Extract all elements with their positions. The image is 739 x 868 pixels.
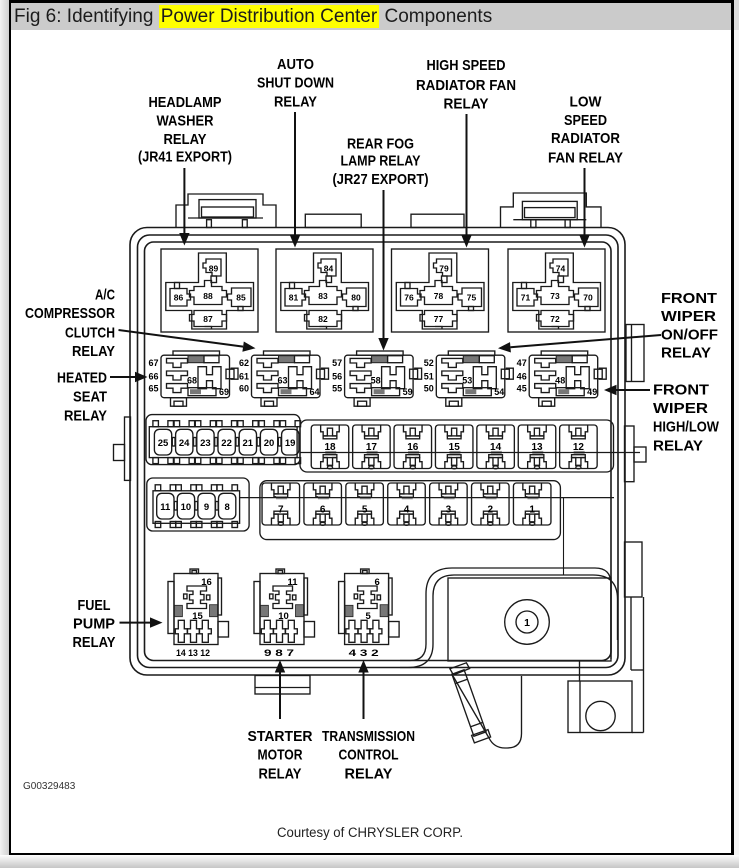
- svg-text:14: 14: [490, 442, 502, 453]
- svg-text:11: 11: [287, 577, 298, 588]
- svg-text:21: 21: [243, 438, 254, 449]
- svg-text:RELAY: RELAY: [164, 131, 207, 148]
- svg-text:FAN RELAY: FAN RELAY: [548, 150, 623, 167]
- svg-text:13: 13: [531, 442, 543, 453]
- svg-text:71: 71: [521, 293, 531, 303]
- svg-text:81: 81: [289, 293, 299, 303]
- svg-text:WIPER: WIPER: [653, 400, 708, 417]
- svg-text:HIGH/LOW: HIGH/LOW: [653, 419, 720, 436]
- svg-text:10: 10: [278, 611, 289, 622]
- svg-text:86: 86: [174, 293, 184, 303]
- svg-text:8: 8: [224, 502, 229, 513]
- svg-text:50: 50: [424, 384, 434, 394]
- svg-text:FRONT: FRONT: [661, 290, 717, 307]
- svg-text:87: 87: [203, 314, 213, 324]
- svg-text:62: 62: [239, 358, 249, 368]
- svg-text:RELAY: RELAY: [259, 766, 302, 783]
- svg-text:ON/OFF: ON/OFF: [661, 327, 718, 344]
- svg-text:RADIATOR: RADIATOR: [551, 130, 620, 147]
- svg-text:SPEED: SPEED: [564, 112, 607, 129]
- svg-text:5: 5: [362, 505, 368, 516]
- svg-text:5: 5: [365, 611, 371, 622]
- svg-text:70: 70: [583, 293, 593, 303]
- svg-text:79: 79: [439, 264, 449, 274]
- svg-text:53: 53: [462, 376, 472, 386]
- svg-text:59: 59: [403, 387, 413, 397]
- svg-text:57: 57: [332, 358, 342, 368]
- svg-text:2: 2: [488, 505, 494, 516]
- svg-text:SHUT DOWN: SHUT DOWN: [257, 75, 334, 92]
- svg-text:85: 85: [236, 293, 246, 303]
- svg-text:COMPRESSOR: COMPRESSOR: [25, 305, 115, 322]
- svg-text:(JR41 EXPORT): (JR41 EXPORT): [138, 149, 232, 166]
- svg-text:69: 69: [219, 387, 229, 397]
- svg-text:A/C: A/C: [95, 287, 115, 304]
- svg-text:61: 61: [239, 372, 249, 382]
- svg-text:RELAY: RELAY: [72, 343, 115, 360]
- svg-text:6: 6: [374, 577, 379, 588]
- svg-text:89: 89: [209, 264, 219, 274]
- svg-text:12: 12: [573, 442, 585, 453]
- svg-text:(JR27 EXPORT): (JR27 EXPORT): [333, 171, 429, 188]
- svg-text:4: 4: [404, 505, 410, 516]
- svg-text:HIGH SPEED: HIGH SPEED: [427, 57, 506, 74]
- svg-text:MOTOR: MOTOR: [258, 747, 303, 764]
- svg-text:54: 54: [494, 387, 504, 397]
- svg-text:75: 75: [467, 293, 477, 303]
- svg-text:17: 17: [366, 442, 378, 453]
- svg-text:9: 9: [204, 502, 209, 513]
- svg-text:58: 58: [371, 376, 381, 386]
- svg-text:G00329483: G00329483: [23, 781, 76, 792]
- svg-text:51: 51: [424, 372, 434, 382]
- svg-text:HEATED: HEATED: [57, 370, 107, 387]
- svg-text:80: 80: [351, 293, 361, 303]
- svg-text:CLUTCH: CLUTCH: [65, 325, 115, 342]
- svg-text:RELAY: RELAY: [73, 634, 116, 651]
- svg-text:16: 16: [201, 577, 212, 588]
- svg-text:10: 10: [181, 502, 192, 513]
- svg-text:RELAY: RELAY: [661, 345, 711, 362]
- svg-text:WASHER: WASHER: [157, 113, 214, 130]
- svg-text:67: 67: [148, 358, 158, 368]
- svg-text:45: 45: [517, 384, 527, 394]
- svg-text:52: 52: [424, 358, 434, 368]
- svg-text:77: 77: [434, 314, 444, 324]
- svg-text:60: 60: [239, 384, 249, 394]
- svg-text:TRANSMISSION: TRANSMISSION: [322, 728, 415, 745]
- svg-text:64: 64: [309, 387, 319, 397]
- svg-text:SEAT: SEAT: [73, 389, 107, 406]
- svg-text:48: 48: [555, 376, 565, 386]
- svg-text:23: 23: [200, 438, 211, 449]
- svg-text:RELAY: RELAY: [444, 96, 489, 113]
- svg-text:66: 66: [148, 372, 158, 382]
- svg-text:88: 88: [203, 291, 213, 301]
- svg-text:WIPER: WIPER: [661, 308, 716, 325]
- svg-text:20: 20: [264, 438, 275, 449]
- svg-text:83: 83: [318, 291, 328, 301]
- svg-text:56: 56: [332, 372, 342, 382]
- svg-text:74: 74: [556, 264, 566, 274]
- svg-text:15: 15: [449, 442, 461, 453]
- svg-text:63: 63: [277, 376, 287, 386]
- svg-text:7: 7: [278, 505, 284, 516]
- svg-text:49: 49: [587, 387, 597, 397]
- svg-text:REAR FOG: REAR FOG: [347, 136, 414, 153]
- svg-text:RELAY: RELAY: [64, 408, 107, 425]
- svg-text:3: 3: [446, 505, 452, 516]
- svg-text:18: 18: [324, 442, 336, 453]
- svg-text:16: 16: [407, 442, 419, 453]
- svg-text:4 3 2: 4 3 2: [349, 648, 379, 659]
- svg-text:Courtesy of CHRYSLER CORP.: Courtesy of CHRYSLER CORP.: [277, 825, 463, 840]
- svg-text:HEADLAMP: HEADLAMP: [149, 94, 222, 111]
- svg-text:1: 1: [529, 505, 535, 516]
- svg-text:14 13 12: 14 13 12: [176, 648, 210, 659]
- svg-text:11: 11: [160, 502, 171, 513]
- svg-text:22: 22: [221, 438, 232, 449]
- svg-text:82: 82: [318, 314, 328, 324]
- svg-text:LAMP RELAY: LAMP RELAY: [341, 153, 421, 170]
- svg-text:PUMP: PUMP: [73, 616, 115, 633]
- svg-text:76: 76: [404, 293, 414, 303]
- svg-text:FRONT: FRONT: [653, 382, 709, 399]
- svg-text:1: 1: [524, 617, 530, 629]
- svg-text:84: 84: [324, 264, 334, 274]
- svg-text:78: 78: [434, 291, 444, 301]
- svg-text:RELAY: RELAY: [274, 94, 317, 111]
- svg-text:CONTROL: CONTROL: [339, 747, 399, 764]
- svg-text:47: 47: [517, 358, 527, 368]
- svg-text:46: 46: [517, 372, 527, 382]
- svg-text:RELAY: RELAY: [345, 766, 393, 783]
- svg-text:RADIATOR FAN: RADIATOR FAN: [416, 77, 516, 94]
- svg-text:15: 15: [192, 611, 203, 622]
- svg-text:AUTO: AUTO: [277, 56, 314, 73]
- svg-text:68: 68: [187, 376, 197, 386]
- svg-text:19: 19: [285, 438, 296, 449]
- svg-text:24: 24: [179, 438, 190, 449]
- svg-text:RELAY: RELAY: [653, 438, 703, 455]
- svg-text:72: 72: [550, 314, 560, 324]
- svg-text:6: 6: [320, 505, 326, 516]
- svg-text:55: 55: [332, 384, 342, 394]
- svg-text:FUEL: FUEL: [78, 597, 111, 614]
- svg-text:LOW: LOW: [570, 94, 603, 111]
- svg-text:STARTER: STARTER: [248, 728, 313, 745]
- svg-text:73: 73: [550, 291, 560, 301]
- svg-text:25: 25: [158, 438, 169, 449]
- svg-text:65: 65: [148, 384, 158, 394]
- svg-text:9 8 7: 9 8 7: [264, 648, 294, 659]
